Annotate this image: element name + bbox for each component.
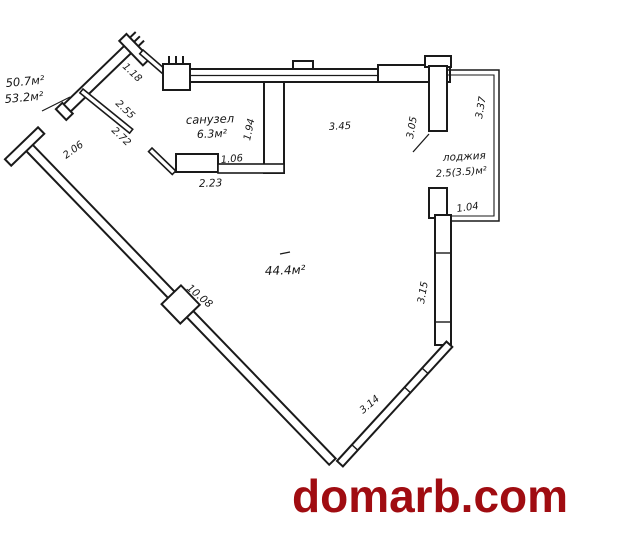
- loggia-glazing-outer: [447, 70, 499, 221]
- dim-bath-width: 2.23: [199, 177, 223, 190]
- room-area-dash: [280, 252, 290, 254]
- label-total-area-1: 50.7м²: [5, 73, 45, 90]
- right-wall: [435, 215, 451, 345]
- walls: [5, 28, 499, 479]
- bathroom-pier: [176, 154, 218, 172]
- dim-loggia-side: 3.37: [474, 95, 489, 119]
- left-wall: [5, 127, 347, 479]
- dim-entry-opening: 1.18: [120, 61, 144, 84]
- dim-entry-wall: 2.06: [61, 139, 85, 161]
- dim-loggia-partition: 3.05: [405, 116, 420, 140]
- bathroom-right-wall: [264, 82, 284, 173]
- dim-bath-door: 1.06: [220, 153, 243, 166]
- floor-plan-page: 50.7м² 53.2м² 1.18 2.55 2.72 2.06 санузе…: [0, 0, 630, 535]
- label-bathroom-name: санузел: [186, 111, 235, 127]
- entry-wall-body: [63, 40, 138, 112]
- label-bathroom-area: 6.3м²: [197, 127, 228, 141]
- floor-plan-drawing: 50.7м² 53.2м² 1.18 2.55 2.72 2.06 санузе…: [0, 0, 630, 535]
- watermark-logo: domarb.com: [292, 470, 568, 522]
- bathroom-door-leaf: [149, 148, 176, 175]
- bottom-window-wall: [337, 342, 452, 467]
- vent-block: [163, 64, 190, 90]
- loggia-wall-upper: [429, 66, 447, 131]
- label-loggia-name: лоджия: [442, 150, 487, 164]
- label-loggia-area: 2.5(3.5)м²: [435, 165, 487, 180]
- dim-top-wall: 3.45: [329, 121, 352, 133]
- dim-bottom-window: 3.14: [358, 394, 382, 417]
- dim-right-window: 3.15: [416, 281, 431, 305]
- loggia-glazing-inner: [447, 75, 494, 216]
- dim-bath-depth: 1.94: [242, 118, 257, 142]
- vent-bump: [293, 61, 313, 69]
- label-room-area: 44.4м²: [265, 263, 306, 278]
- loggia-wall-lower: [429, 188, 447, 218]
- vent-block-hatch-icon: [169, 56, 183, 64]
- labels: 50.7м² 53.2м² 1.18 2.55 2.72 2.06 санузе…: [4, 61, 489, 416]
- bathroom-door-leaf-body: [149, 148, 176, 175]
- dim-loggia-bottom: 1.04: [456, 201, 480, 215]
- label-total-area-2: 53.2м²: [4, 89, 44, 106]
